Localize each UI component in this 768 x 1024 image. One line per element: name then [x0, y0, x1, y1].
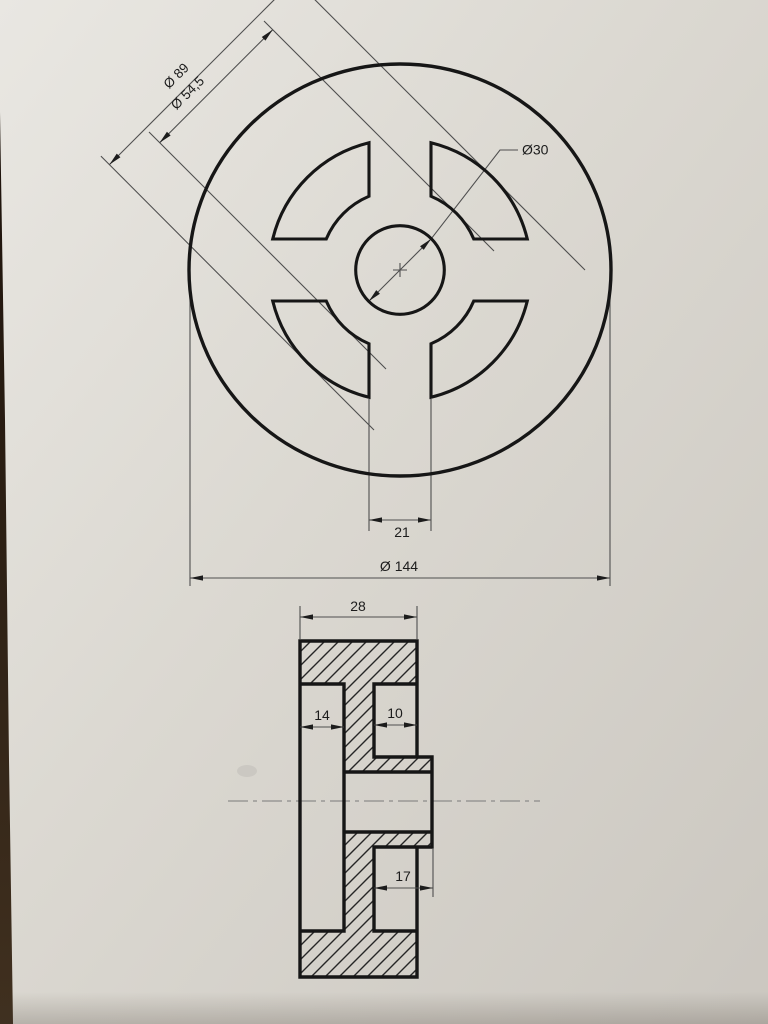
bottom-shadow — [0, 992, 768, 1024]
dim-web-width-label: 10 — [387, 705, 403, 721]
dim-outer-diameter-label: Ø 144 — [380, 558, 418, 574]
dim-recess-width-label: 14 — [314, 707, 330, 723]
photographed-drawing-sheet: Ø 144 21 Ø30 Ø 54,5 Ø 89 — [0, 0, 768, 1024]
dim-hub-boss-label: 17 — [395, 868, 411, 884]
background — [0, 0, 768, 1024]
drawing-sheet-svg: Ø 144 21 Ø30 Ø 54,5 Ø 89 — [0, 0, 768, 1024]
dim-bore-diameter-label: Ø30 — [522, 142, 549, 158]
dim-spoke-width-label: 21 — [394, 524, 410, 540]
paper-smudge — [237, 765, 257, 777]
paper-sheet — [0, 0, 768, 1024]
dim-overall-width-label: 28 — [350, 598, 366, 614]
